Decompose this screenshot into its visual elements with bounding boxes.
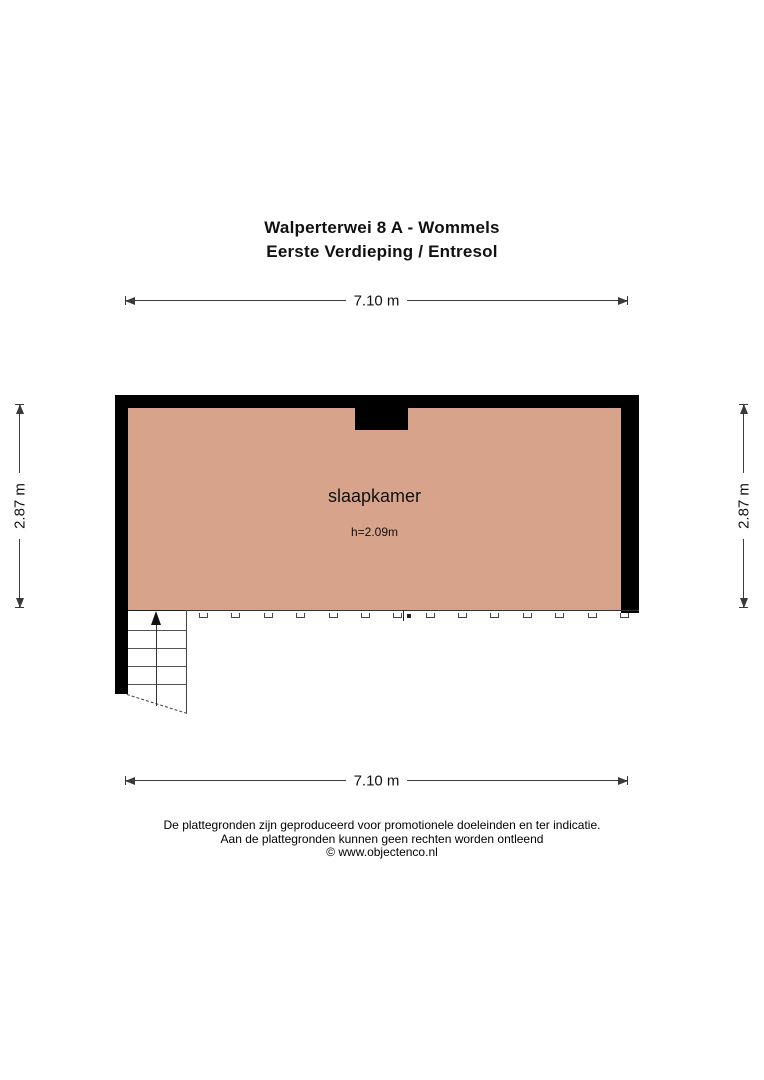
dimension-right-label: 2.87 m	[736, 473, 753, 539]
floorplan-page: Walperterwei 8 A - Wommels Eerste Verdie…	[0, 0, 764, 1080]
railing-newel-post-dot	[407, 614, 411, 618]
disclaimer: De plattegronden zijn geproduceerd voor …	[0, 819, 764, 860]
railing-post	[296, 613, 305, 618]
railing-post	[555, 613, 564, 618]
stairs-direction-arrow-shaft	[156, 624, 157, 706]
page-title-floor: Eerste Verdieping / Entresol	[0, 240, 764, 264]
dimension-left: 2.87 m	[13, 404, 26, 608]
wall-left	[115, 395, 128, 694]
arrow-right-icon	[618, 777, 628, 785]
railing-post	[458, 613, 467, 618]
railing-post	[523, 613, 532, 618]
stair-tread	[128, 648, 187, 649]
railing-post	[588, 613, 597, 618]
room-ceiling-height-label: h=2.09m	[128, 525, 621, 539]
copyright-line: © www.objectenco.nl	[0, 846, 764, 860]
railing-post	[264, 613, 273, 618]
dimension-left-label: 2.87 m	[12, 473, 29, 539]
railing-post	[361, 613, 370, 618]
page-title: Walperterwei 8 A - Wommels Eerste Verdie…	[0, 216, 764, 264]
railing-post	[620, 613, 629, 618]
dimension-bottom: 7.10 m	[125, 774, 628, 787]
page-title-address: Walperterwei 8 A - Wommels	[0, 216, 764, 240]
wall-right	[621, 395, 639, 613]
chimney-notch	[355, 395, 408, 430]
railing-post	[199, 613, 208, 618]
room-slaapkamer-area	[128, 408, 621, 610]
arrow-up-icon	[740, 404, 748, 414]
arrow-left-icon	[125, 777, 135, 785]
disclaimer-line2: Aan de plattegronden kunnen geen rechten…	[0, 833, 764, 847]
railing-post	[329, 613, 338, 618]
dimension-bottom-label: 7.10 m	[346, 773, 408, 790]
stair-tread	[128, 630, 187, 631]
arrow-down-icon	[740, 598, 748, 608]
arrow-left-icon	[125, 297, 135, 305]
dimension-right: 2.87 m	[737, 404, 750, 608]
railing-post	[231, 613, 240, 618]
room-label: slaapkamer	[128, 486, 621, 507]
railing-post	[393, 613, 402, 618]
railing	[187, 610, 639, 619]
stairs-up-arrow-icon	[151, 611, 161, 625]
stairs-side-line	[186, 610, 187, 713]
stair-tread	[128, 684, 187, 685]
railing-post	[490, 613, 499, 618]
arrow-up-icon	[16, 404, 24, 414]
disclaimer-line1: De plattegronden zijn geproduceerd voor …	[0, 819, 764, 833]
stair-tread	[128, 666, 187, 667]
dimension-top-label: 7.10 m	[346, 293, 408, 310]
arrow-right-icon	[618, 297, 628, 305]
railing-post	[426, 613, 435, 618]
arrow-down-icon	[16, 598, 24, 608]
dimension-top: 7.10 m	[125, 294, 628, 307]
railing-newel-post	[403, 610, 404, 621]
